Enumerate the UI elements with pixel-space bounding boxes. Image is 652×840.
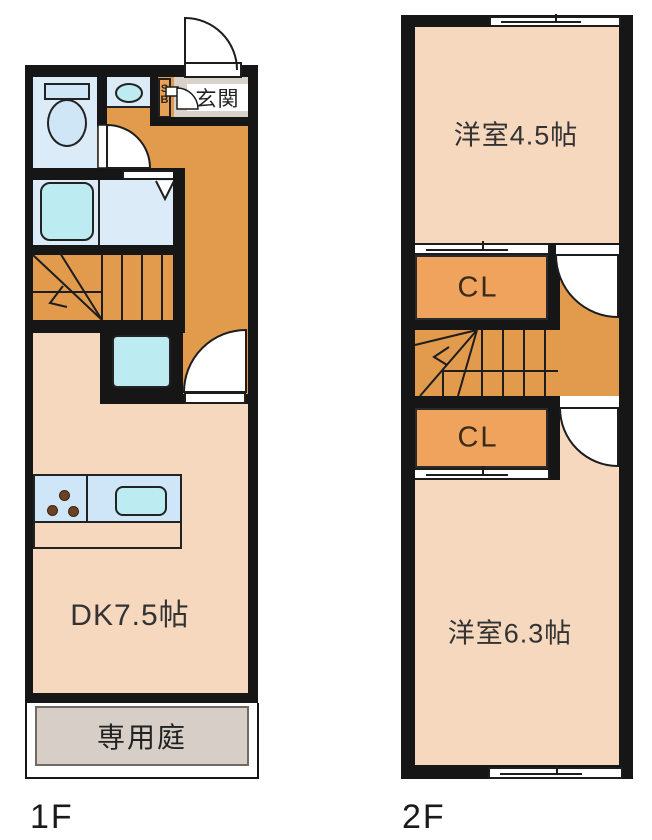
wall — [25, 245, 183, 255]
room-6-3-nook — [560, 408, 619, 488]
entry-door-sill — [184, 62, 242, 78]
sliding-door-line — [426, 249, 508, 251]
closet-upper-sliding-door — [413, 243, 550, 255]
sliding-door-line — [426, 474, 508, 476]
wall — [25, 65, 33, 703]
wall — [150, 117, 248, 126]
closet-lower-label: CL — [457, 422, 498, 455]
window-tick — [555, 14, 557, 23]
stove-burner-icon — [68, 506, 79, 517]
stove-burner-icon — [59, 490, 70, 501]
washroom-sliding-door — [122, 170, 177, 180]
dk-door-sill — [184, 392, 246, 404]
wall — [248, 65, 258, 703]
toilet-bowl-icon — [47, 99, 87, 147]
toilet-tank-icon — [44, 83, 90, 100]
window-line — [500, 773, 581, 775]
wall — [97, 77, 107, 127]
floor-label-1f: 1F — [30, 798, 74, 837]
sliding-door-tick — [482, 241, 484, 250]
wall — [401, 15, 415, 779]
sliding-door-tick — [482, 466, 484, 475]
doorway-2f-lower — [560, 397, 619, 408]
closet-upper-label: CL — [457, 272, 498, 305]
floor-label-2f: 2F — [402, 798, 446, 837]
shoe-box: SB — [158, 78, 171, 118]
wall — [25, 693, 258, 703]
wall — [98, 180, 100, 245]
wall — [401, 396, 560, 408]
entrance-label: 玄関 — [187, 84, 248, 111]
wall — [619, 15, 633, 779]
doorway-2f-upper — [556, 245, 619, 255]
room-4-5-label: 洋室4.5帖 — [454, 114, 579, 153]
dk-room-label: DK7.5帖 — [70, 590, 189, 634]
window-tick — [556, 765, 558, 774]
window-line — [501, 21, 580, 23]
hallway-1f-lower — [183, 333, 248, 394]
private-garden-frame: 専用庭 — [25, 703, 259, 779]
shoe-box-label: SB — [161, 83, 169, 106]
private-garden: 専用庭 — [35, 706, 249, 766]
window-2f-bottom — [488, 767, 623, 779]
wall — [548, 255, 560, 330]
hallway-2f — [556, 253, 619, 396]
floorplan-canvas: SB 玄関 DK7.5帖 専用庭 1F — [0, 0, 652, 840]
room-6-3-label: 洋室6.3帖 — [448, 612, 573, 651]
bathtub-icon — [40, 182, 94, 241]
closet-lower-sliding-door — [413, 468, 550, 480]
wall — [401, 320, 560, 330]
kitchen-counter-edge — [33, 523, 182, 549]
washing-machine-icon — [112, 335, 171, 388]
window-2f-top — [489, 16, 621, 27]
stove-burner-icon — [47, 505, 58, 516]
wall — [548, 408, 560, 470]
washbasin-icon — [115, 83, 143, 103]
stairs-2f — [415, 330, 558, 396]
kitchen-sink-icon — [115, 486, 167, 516]
private-garden-label: 専用庭 — [97, 716, 187, 756]
kitchen-counter-divider — [86, 474, 88, 523]
